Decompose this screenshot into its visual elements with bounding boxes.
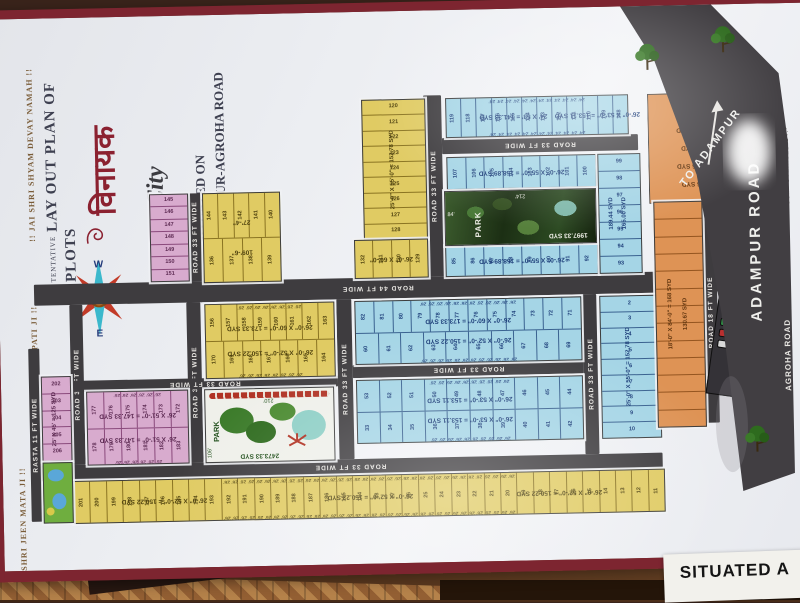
plot-cell: 164 <box>316 339 335 375</box>
plot-block-orange-strip: 18'-0" X 84'-0" = 168 SYD130.67 SYD <box>653 201 707 428</box>
plot-cell: 79 <box>411 300 430 331</box>
plot-cell: 130 <box>390 240 409 277</box>
block-dimension-label: 166 SYD <box>652 179 738 188</box>
plot-cell: 174 <box>137 391 155 427</box>
plot-cell: 7 <box>602 374 660 391</box>
photo-of-plot-layout-board: { "title": { "tentative": "TENTATIVE", "… <box>0 0 800 600</box>
tree-icon <box>744 423 771 454</box>
plot-cell: 138 <box>241 238 261 282</box>
plot-cell: 168 <box>242 341 261 377</box>
plot-cell: 4 <box>601 326 659 343</box>
plot-cell: 17 <box>549 472 566 513</box>
road-label: ROAD 44 FT WIDE <box>342 284 414 293</box>
park-drawn-top-dim: 210' <box>263 397 273 403</box>
compass-w: W <box>94 259 104 270</box>
plot-cell: 38 <box>470 410 493 441</box>
plot-cell: 2 <box>600 296 658 312</box>
plot-cell: 27 <box>385 475 402 516</box>
parking-cars <box>709 294 769 397</box>
plot-block-blue-center-top: 8281807978777675747372716061626364656667… <box>354 296 582 365</box>
plot-cell: 163 <box>317 302 334 338</box>
plot-cell: 105 <box>484 157 503 188</box>
page-title: TENTATIVE LAY OUT PLAN OF PLOTS <box>40 44 81 283</box>
plot-cell: 39 <box>492 409 515 440</box>
plot-cell: 162 <box>301 303 318 339</box>
plot-cell: 28 <box>369 475 386 516</box>
plot-cell: 45 <box>537 377 560 408</box>
block-dimension-label: 145 SYD <box>651 143 737 152</box>
plot-cell: 11 <box>648 470 665 511</box>
layout-plan-board: !! JAI SHRI SHYAM DEVAY NAMAH !! !! JAI … <box>0 0 800 583</box>
plot-cell: 85 <box>446 247 465 276</box>
plot-cell: 95 <box>600 221 641 239</box>
computerised-by-label: COMPUTERISED BY:- <box>782 55 791 205</box>
plot-cell: 61 <box>378 333 401 364</box>
parking-block: PARKING <box>706 290 782 401</box>
plot-cell: 140 <box>264 193 280 237</box>
plot-cell: 159 <box>253 304 270 340</box>
plot-cell: 73 <box>524 298 543 329</box>
plot-block-blue-row-3: 858687888990919226'-0" X 55'-0" = 158.89… <box>445 243 599 277</box>
plot-cell: 118 <box>460 98 476 136</box>
car-icon <box>750 311 764 321</box>
road-label: ROAD 33 FT WIDE <box>432 365 504 374</box>
road-label: ROAD 33 FT WIDE <box>191 201 200 273</box>
plot-cell: 125 <box>364 176 426 193</box>
plot-cell: 124 <box>363 160 425 177</box>
park-photo-area: PARK 1997.33 SYD 84' 214' <box>444 188 597 246</box>
title-main-text: LAY OUT PLAN OF PLOTS <box>42 82 80 282</box>
park-tree-blob <box>269 402 295 421</box>
road-label: ROAD 33 FT WIDE <box>314 462 386 471</box>
plot-cell: 94 <box>600 238 641 256</box>
road-label: ROAD 33 FT WIDE <box>430 150 439 222</box>
plot-cell: 199 <box>106 481 123 522</box>
logo-devanagari: विनायक <box>82 65 126 216</box>
plot-cell: 36 <box>424 411 447 442</box>
plot-cell: 200 <box>89 481 106 522</box>
plot-cell: 49 <box>446 379 469 410</box>
plot-cell: 183 <box>171 427 189 463</box>
plot-cell: 69 <box>558 329 581 360</box>
road-arrow-icon <box>711 100 723 112</box>
park-drawn-area: PARK 2473.33 SYD 210' 106' <box>204 386 336 463</box>
plot-cell: 157 <box>220 305 237 341</box>
plot-cell: 149 <box>151 243 188 256</box>
plot-cell: 103 <box>521 156 540 187</box>
tree-icon <box>710 24 737 55</box>
plot-cell: 97 <box>599 187 640 205</box>
plot-cell: 121 <box>362 114 424 131</box>
plot-cell: 150 <box>151 256 188 269</box>
plot-cell: 186 <box>319 476 336 517</box>
plot-cell: 15 <box>582 471 599 512</box>
plot-cell: 51 <box>401 380 424 411</box>
plot-cell: 115 <box>506 98 522 136</box>
plot-cell: 175 <box>120 392 138 428</box>
plot-cell: 111 <box>566 96 582 134</box>
plot-cell <box>655 218 702 236</box>
plot-cell: 22 <box>467 473 484 514</box>
plot-cell: 120 <box>362 100 424 116</box>
plot-cell: 113 <box>536 97 552 135</box>
plot-cell: 6 <box>602 358 660 375</box>
plot-block-blue-center-bottom: 5352515049484746454433343536373839404142… <box>356 375 584 444</box>
car-icon <box>747 332 761 342</box>
plot-cell: 151 <box>152 268 189 281</box>
plot-cell: 60 <box>356 333 378 364</box>
plot-cell: 147 <box>151 218 188 231</box>
plot-cell <box>656 305 703 323</box>
plot-cell: 182 <box>154 427 172 463</box>
plot-block-yellow-block-136: 14414314214114013613713813927'-4"109'-6" <box>202 192 282 284</box>
compass-e: E <box>96 328 103 339</box>
plot-cell: 25 <box>418 474 435 515</box>
plot-cell: 67 <box>513 330 536 361</box>
plot-cell: 116 <box>491 98 507 136</box>
plot-cell: 180 <box>121 428 139 464</box>
plot-block-yellow-col: 12012112212312412512612712825'-0" X 55'-… <box>361 99 428 240</box>
plot-cell: 37 <box>447 410 470 441</box>
plot-cell: 166 <box>279 340 298 376</box>
plot-cell: 71 <box>561 297 580 328</box>
plot-block-blue-row-top: 11911811711611511411311211111010910824' … <box>445 94 629 138</box>
block-dimension-label: 132.41 SYD <box>651 125 737 134</box>
plot-cell: 20 <box>500 473 517 514</box>
plot-cell: 122 <box>363 129 425 146</box>
plot-cell: 126 <box>364 191 426 208</box>
plot-cell: 68 <box>536 329 559 360</box>
plot-cell: 136 <box>204 238 223 282</box>
plot-cell <box>657 339 704 357</box>
plot-cell: 185 <box>336 476 353 517</box>
park-palm-icon <box>286 432 308 450</box>
plot-cell <box>655 235 702 253</box>
logo-city-script: City <box>141 116 170 207</box>
plot-cell: 82 <box>355 302 373 333</box>
plot-cell: 144 <box>203 194 218 238</box>
car-icon <box>720 318 734 328</box>
car-icon <box>717 339 731 349</box>
plot-cell: 100 <box>577 155 596 186</box>
chant-top: !! JAI SHRI SHYAM DEVAY NAMAH !! <box>24 47 37 242</box>
plot-cell: 63 <box>423 332 446 363</box>
plot-block-pink-block: 17717617517417317217817918018118218326' … <box>86 390 190 466</box>
plot-cell: 177 <box>87 392 104 428</box>
plot-cell: 104 <box>502 157 521 188</box>
plot-cell: 190 <box>254 478 271 519</box>
plot-cell: 137 <box>222 238 242 282</box>
plot-cell: 112 <box>551 97 567 135</box>
road-label: RASTA 11 FT WIDE <box>31 398 40 473</box>
plot-block-blue-col-2-10: 234567891025'-0" X 55'-0" = 152.78 SYD <box>599 295 662 439</box>
plot-cell: 16 <box>566 471 583 512</box>
road-label: ROAD 33 FT WIDE <box>341 343 350 415</box>
road: RASTA 11 FT WIDE <box>28 349 43 522</box>
plot-cell: 102 <box>539 156 558 187</box>
road: ROAD 33 FT WIDE <box>336 299 354 459</box>
plot-cell: 156 <box>205 305 221 341</box>
plot-cell: 101 <box>558 155 577 186</box>
plot-cell: 74 <box>505 299 524 330</box>
block-dimension-label: 150.88 SYD <box>650 107 736 116</box>
plot-cell: 46 <box>514 377 537 408</box>
plot-cell: 106 <box>465 157 484 188</box>
plot-cell: 64 <box>445 331 468 362</box>
park-small-pond <box>48 469 64 481</box>
plot-cell: 196 <box>155 480 172 521</box>
plot-cell: 117 <box>475 98 491 136</box>
plot-cell: 205 <box>43 426 71 443</box>
plot-cell: 66 <box>490 330 513 361</box>
plot-cell: 197 <box>139 480 156 521</box>
plot-cell: 145 <box>150 195 187 207</box>
plot-cell: 81 <box>373 301 392 332</box>
plot-cell: 93 <box>600 255 641 273</box>
plot-cell <box>658 391 705 409</box>
plot-cell: 44 <box>559 376 582 407</box>
park-small-shrub <box>47 507 55 515</box>
plot-cell: 188 <box>286 477 303 518</box>
plot-cell: 189 <box>270 478 287 519</box>
plot-cell <box>659 408 706 426</box>
plot-cell: 165 <box>297 340 316 376</box>
plot-cell: 173 <box>153 391 171 427</box>
plot-cell: 65 <box>468 331 491 362</box>
park-drawn-area-value: 2473.33 SYD <box>240 452 279 460</box>
plot-cell: 19 <box>516 472 533 513</box>
parking-row <box>717 339 760 353</box>
plot-cell: 203 <box>42 393 70 410</box>
plot-cell: 127 <box>364 207 426 224</box>
plot-cell: 33 <box>358 412 380 443</box>
plot-cell: 108 <box>612 95 628 133</box>
plot-block-yellow-row: 13213113012926'-0" X 60'-0" <box>354 238 429 279</box>
plot-cell: 206 <box>43 443 71 460</box>
plot-cell: 91 <box>559 244 579 273</box>
plot-cell: 193 <box>204 479 221 520</box>
plot-cell: 72 <box>543 298 562 329</box>
agroha-road-label: AGROHA ROAD <box>783 319 794 391</box>
plot-cell: 143 <box>217 194 233 238</box>
plot-cell: 192 <box>221 479 238 520</box>
plot-cell: 8 <box>602 389 660 406</box>
plot-cell <box>657 322 704 340</box>
plot-cell: 41 <box>537 408 560 439</box>
park-photo-top-dim: 214' <box>515 192 525 198</box>
plot-cell: 123 <box>363 145 425 162</box>
park-small-area <box>43 462 74 524</box>
plot-cell: 110 <box>582 96 598 134</box>
plot-block-pink-small: 20220320420520625' X 45' = 125 SYD <box>41 376 73 462</box>
plot-cell: 109 <box>597 96 613 134</box>
plot-cell <box>655 253 702 271</box>
plot-cell: 148 <box>151 231 188 244</box>
plot-cell: 80 <box>392 301 411 332</box>
plot-cell: 21 <box>483 473 500 514</box>
plot-cell: 92 <box>578 244 598 273</box>
car-icon <box>749 322 763 332</box>
plot-cell: 87 <box>483 246 503 275</box>
plot-cell: 3 <box>601 310 659 327</box>
road-label: ROAD 33 FT WIDE <box>587 338 596 410</box>
plot-cell: 78 <box>430 300 449 331</box>
park-small-pond <box>52 493 66 509</box>
plot-cell: 12 <box>631 470 648 511</box>
park-drawn-left-dim: 106' <box>207 442 213 458</box>
plan-paper: !! JAI SHRI SHYAM DEVAY NAMAH !! !! JAI … <box>0 2 800 571</box>
plot-cell: 86 <box>464 246 484 275</box>
road-label: ROAD 33 FT WIDE <box>504 140 576 149</box>
plot-cell: 53 <box>357 381 379 412</box>
plot-cell: 194 <box>188 479 205 520</box>
plot-cell: 34 <box>379 412 402 443</box>
plot-cell: 42 <box>560 408 583 439</box>
corner-sheet: SITUATED A <box>663 549 800 602</box>
plot-cell: 24 <box>434 474 451 515</box>
plot-cell: 75 <box>486 299 505 330</box>
plot-cell <box>654 202 701 219</box>
car-icon <box>752 300 766 310</box>
plot-cell: 62 <box>400 332 423 363</box>
plot-cell: 76 <box>467 299 486 330</box>
plot-cell: 141 <box>248 193 264 237</box>
plot-cell: 14 <box>598 471 615 512</box>
plot-cell: 35 <box>402 411 425 442</box>
plot-block-blue-col-right: 99989796959493189.44 SYD165.00 SYD <box>597 153 643 274</box>
car-icon <box>723 296 737 306</box>
plot-cell: 129 <box>409 240 428 277</box>
plot-cell: 131 <box>372 240 391 277</box>
plot-cell: 167 <box>260 341 279 377</box>
plot-cell: 142 <box>233 193 249 237</box>
plot-cell: 202 <box>42 377 70 393</box>
chant-bottom: !! JAI SHRI JEEN MATA JI !! <box>17 435 29 571</box>
plot-cell: 114 <box>521 97 537 135</box>
plot-cell: 90 <box>540 245 560 274</box>
plot-cell: 10 <box>603 421 661 438</box>
plot-cell: 176 <box>103 392 121 428</box>
plot-cell: 181 <box>137 428 155 464</box>
plot-cell: 161 <box>285 303 302 339</box>
plot-cell: 179 <box>104 428 122 464</box>
plot-cell: 18 <box>533 472 550 513</box>
plot-cell: 89 <box>521 245 541 274</box>
plot-cell: 119 <box>446 99 461 137</box>
road: ROAD 33 FT WIDE <box>582 294 599 454</box>
plot-cell: 139 <box>261 237 281 281</box>
plot-block-blue-row-2: 10710610510410310210110026'-0" X 55'-0" … <box>446 154 597 190</box>
plot-cell: 77 <box>448 300 467 331</box>
plot-cell: 98 <box>599 170 640 188</box>
plot-cell <box>658 357 705 375</box>
plot-cell: 5 <box>601 342 659 359</box>
plot-cell: 88 <box>502 246 522 275</box>
park-photo-left-dim: 84' <box>447 212 454 218</box>
plot-cell: 172 <box>170 391 188 427</box>
plot-cell: 50 <box>424 379 447 410</box>
park-tree-blob <box>246 421 276 444</box>
plot-cell: 9 <box>603 405 661 422</box>
plot-cell <box>656 270 703 288</box>
plot-cell: 23 <box>451 474 468 515</box>
plot-cell: 40 <box>515 409 538 440</box>
plot-block-yellow-mid: 1561571581591601611621631701691681671661… <box>204 301 336 379</box>
plot-cell: 184 <box>352 476 369 517</box>
plot-cell: 169 <box>224 341 243 377</box>
plot-cell: 99 <box>598 154 639 171</box>
plot-cell: 47 <box>491 378 514 409</box>
car-icon <box>718 329 732 339</box>
logo-flourish-icon <box>83 217 110 248</box>
plot-cell: 13 <box>615 470 632 511</box>
plot-block-pink-col: 145146147148149150151 <box>149 194 190 283</box>
plot-cell: 170 <box>206 342 224 378</box>
plot-cell: 96 <box>599 204 640 222</box>
plot-cell: 191 <box>237 478 254 519</box>
plot-cell: 198 <box>122 481 139 522</box>
plot-cell <box>656 287 703 305</box>
plot-cell: 132 <box>355 241 373 278</box>
plot-cell: 195 <box>171 480 188 521</box>
car-icon <box>746 343 760 353</box>
plot-cell: 178 <box>88 429 105 465</box>
plot-cell <box>658 374 705 392</box>
plot-cell: 201 <box>74 482 90 523</box>
plot-cell: 107 <box>447 158 465 189</box>
plot-block-orange-top: 150.88 SYD132.41 SYD145 SYD157.66 SYD166… <box>647 92 741 204</box>
plot-cell: 187 <box>303 477 320 518</box>
plot-cell: 128 <box>365 222 427 239</box>
corner-sheet-text: SITUATED A <box>680 559 791 582</box>
plot-cell: 160 <box>269 304 286 340</box>
plot-cell: 48 <box>469 378 492 409</box>
block-dimension-label: 157.66 SYD <box>651 161 737 170</box>
car-icon <box>721 307 735 317</box>
park-photo-label: PARK <box>473 199 483 237</box>
plot-cell: 146 <box>150 206 187 219</box>
road-label: ROAD 33 FT WIDE <box>169 379 241 388</box>
park-drawn-label: PARK <box>211 408 221 442</box>
plot-cell: 52 <box>379 380 402 411</box>
tree-icon <box>634 42 661 73</box>
plot-cell: 158 <box>237 304 254 340</box>
plot-cell: 204 <box>42 410 70 427</box>
plot-cell: 26 <box>401 475 418 516</box>
park-photo-area-value: 1997.33 SYD <box>549 231 588 239</box>
